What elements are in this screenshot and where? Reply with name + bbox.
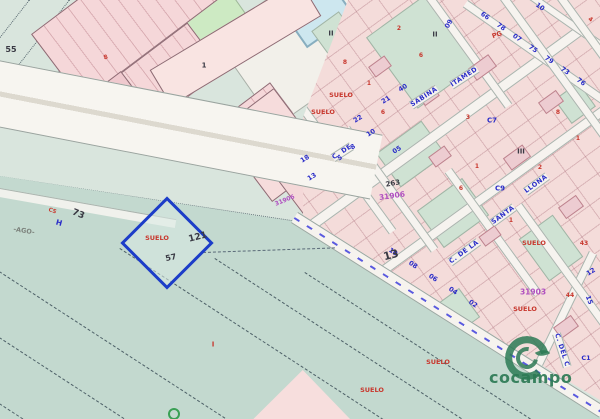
plot-line: [0, 384, 171, 419]
map-label: 55: [5, 46, 16, 54]
watermark-text: cocampo: [489, 368, 572, 387]
field-boundary-line: [0, 0, 30, 47]
cadastral-map: SABINAITAMEDC. DEC. DE LASANTALLONAC. DE…: [0, 0, 600, 419]
plot-line: [0, 318, 272, 419]
survey-marker: [168, 408, 180, 419]
parcel: [245, 370, 350, 419]
